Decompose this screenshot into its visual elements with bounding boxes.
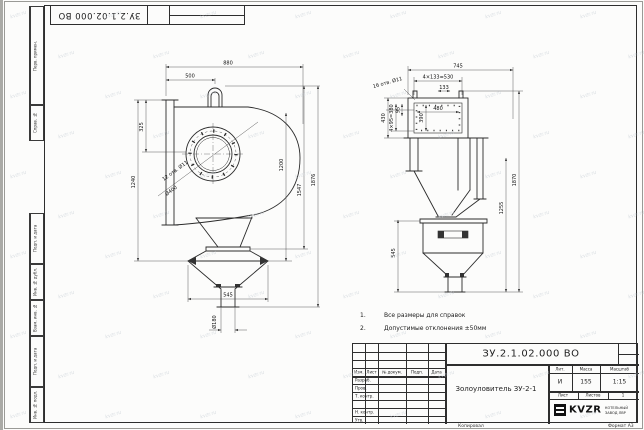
- outlet-dia-label: Ø180: [211, 315, 218, 328]
- dim-label: 1870: [512, 174, 518, 187]
- note-2-number: 2.: [360, 325, 366, 332]
- tb-row-nkontr: Н. контр.: [355, 410, 374, 415]
- tb-row-utv: Утв.: [355, 418, 363, 423]
- company-name-line2: ЗАВОД ЛВР: [605, 410, 626, 414]
- dim-label: 325: [139, 122, 145, 132]
- tb-mass-label: Масса: [580, 366, 593, 371]
- tb-sheet-label: Лист: [558, 393, 568, 398]
- format-label: Формат А3: [608, 424, 634, 429]
- front-view: 880 500 325 1240 12 отв. Ø11 Ø400 1200 1…: [131, 61, 320, 334]
- tb-header-data: Дата: [431, 370, 441, 375]
- dim-label: 500: [185, 74, 195, 80]
- tb-row-razrab: Разраб.: [355, 378, 371, 383]
- note-2-text: Допустимые отклонения ±50мм: [384, 325, 486, 332]
- dim-label: 480: [433, 106, 443, 112]
- dim-label: 430: [381, 113, 387, 123]
- dim-label: 4×133=530: [423, 75, 454, 81]
- tb-header-list: Лист: [366, 370, 376, 375]
- tb-sheets-value: 1: [622, 393, 625, 398]
- tb-scale-label: Масштаб: [610, 366, 629, 371]
- dim-label: 545: [391, 248, 397, 258]
- tb-sheets-label: Листов: [586, 393, 601, 398]
- tb-scale-value: 1:15: [613, 379, 626, 386]
- drawing-sheet: Перв. примен. Справ. № Подп. и дата Инв.…: [0, 0, 644, 430]
- dim-label: 390: [419, 113, 425, 123]
- holes-note: 16 отв. Ø11: [372, 75, 403, 90]
- dim-label: 1255: [499, 202, 505, 215]
- dim-label: 1240: [131, 176, 137, 189]
- dim-label: 1547: [297, 184, 303, 197]
- tb-header-izm: Изм.: [354, 370, 363, 375]
- tb-header-doc: № докум.: [382, 370, 402, 375]
- side-view: 745 4×133=530 133 480 390 95 4×95=380 43…: [372, 64, 523, 293]
- tb-header-podp: Подп.: [411, 370, 423, 375]
- company-logo-text: KVZR: [569, 405, 601, 416]
- note-1-text: Все размеры для справок: [384, 312, 465, 319]
- copied-label: Копировал: [458, 424, 484, 429]
- tb-lit-value: И: [558, 379, 563, 386]
- dim-label: 1876: [311, 174, 317, 187]
- tb-row-prov: Пров.: [355, 386, 367, 391]
- holes-note: 12 отв. Ø11: [161, 159, 190, 183]
- dim-label: 133: [439, 85, 449, 91]
- title-block: Изм. Лист № докум. Подп. Дата Разраб. Пр…: [352, 343, 638, 423]
- company-logo-icon: [554, 404, 566, 416]
- tb-doc-number: ЗУ.2.1.02.000 ВО: [482, 349, 579, 360]
- dim-label: 745: [453, 64, 463, 70]
- tb-part-name: Золоуловитель ЗУ-2-1: [455, 385, 536, 393]
- company-name-line1: КОТЕЛЬНЫЙ: [605, 405, 628, 409]
- tb-lit-label: Лит.: [555, 366, 564, 371]
- note-1-number: 1.: [360, 312, 366, 319]
- dim-label: 880: [223, 61, 233, 67]
- dim-label: 1200: [279, 159, 285, 172]
- tb-row-tkontr: Т. контр.: [355, 394, 374, 399]
- dim-label: 545: [223, 293, 233, 299]
- dim-label: 4×95=380: [389, 104, 395, 131]
- tb-mass-value: 155: [580, 379, 591, 386]
- dim-label: 95: [396, 107, 402, 113]
